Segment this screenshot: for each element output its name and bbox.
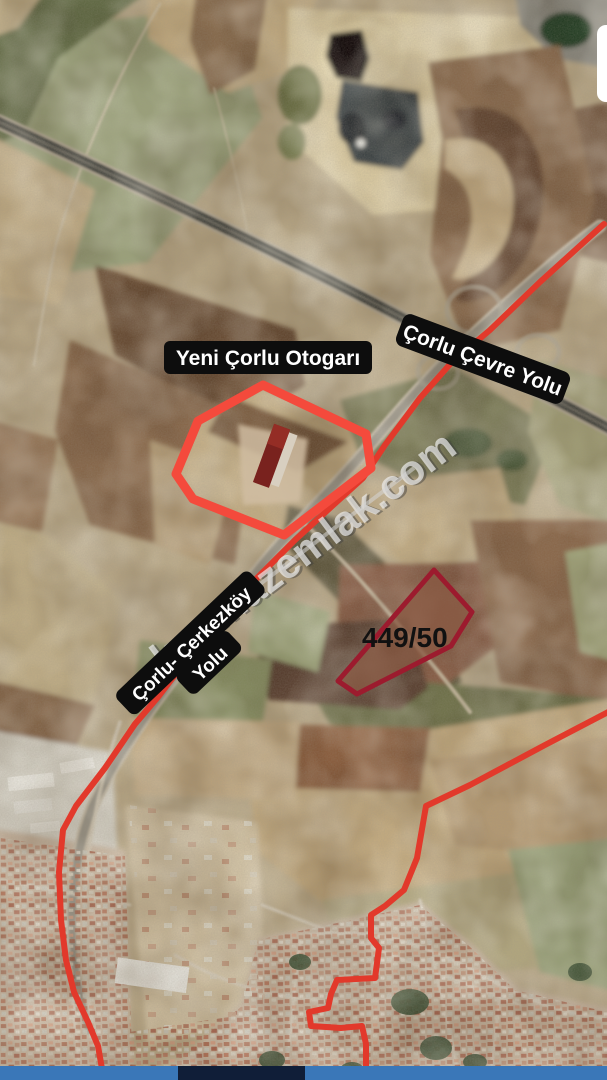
svg-text:Yeni Çorlu Otogarı: Yeni Çorlu Otogarı <box>176 347 360 370</box>
svg-text:449/50: 449/50 <box>362 622 448 653</box>
